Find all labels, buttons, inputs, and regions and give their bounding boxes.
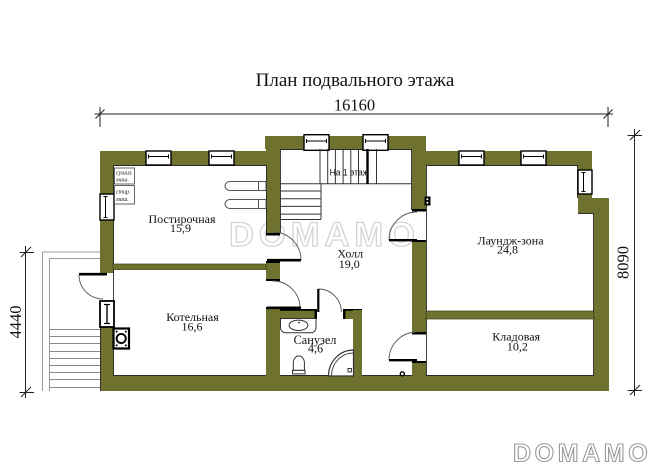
svg-text:19,0: 19,0 [339,257,360,271]
svg-text:4,6: 4,6 [308,342,323,356]
svg-text:сушил.: сушил. [116,171,133,177]
svg-text:24,8: 24,8 [497,243,518,257]
svg-text:маш.: маш. [115,178,129,184]
svg-text:8090: 8090 [614,246,633,279]
svg-text:16,6: 16,6 [182,320,203,334]
svg-text:План подвального этажа: План подвального этажа [256,70,455,91]
svg-text:16160: 16160 [334,96,375,115]
svg-text:На 1 этаж: На 1 этаж [330,167,369,177]
svg-text:стир.: стир. [116,190,131,196]
svg-text:4440: 4440 [6,306,25,339]
svg-text:15,9: 15,9 [170,221,191,235]
svg-text:DOMAMO: DOMAMO [513,439,651,467]
svg-text:маш.: маш. [115,197,129,203]
svg-text:10,2: 10,2 [507,340,528,354]
svg-text:DOMAMO: DOMAMO [229,216,420,254]
